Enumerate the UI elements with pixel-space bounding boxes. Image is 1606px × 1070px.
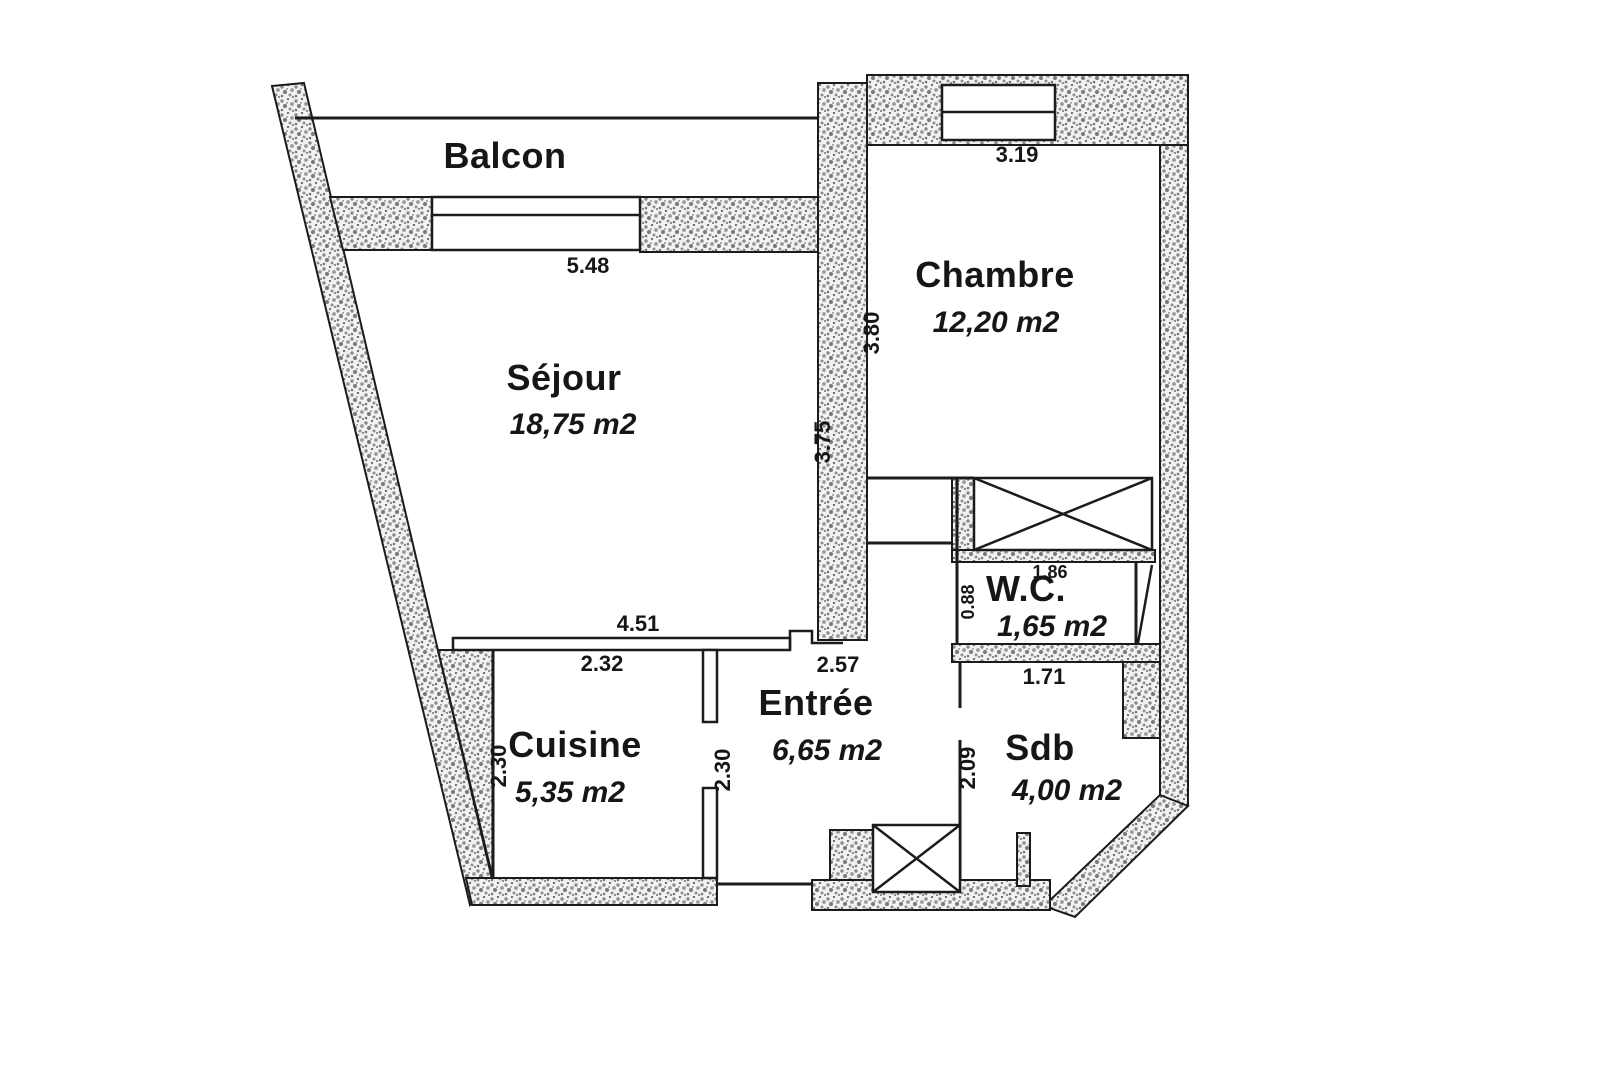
wall-cuisine-right-upper <box>703 650 717 722</box>
wall-sdb-notch <box>1123 655 1160 738</box>
wall-balcony-band-left <box>330 197 432 250</box>
dim-chambre-left: 3.80 <box>859 312 884 355</box>
dim-cuisine-left: 2.30 <box>486 745 511 788</box>
wall-chamfer-bottom-right <box>1044 795 1188 917</box>
room-label-entree: Entrée <box>758 682 873 723</box>
room-label-cuisine: Cuisine <box>508 724 642 765</box>
room-area-chambre: 12,20 m2 <box>933 306 1060 339</box>
dim-wc-left: 0.88 <box>958 584 978 619</box>
room-area-sejour: 18,75 m2 <box>510 408 637 441</box>
wall-right <box>1160 145 1188 806</box>
room-area-sdb: 4,00 m2 <box>1011 774 1122 807</box>
wall-sdb-door-stub <box>1017 833 1030 886</box>
dim-sejour-right: 3.75 <box>810 421 835 464</box>
wall-balcony-band-right <box>640 197 818 252</box>
dim-cuisine-top: 2.32 <box>581 651 624 676</box>
wall-center-vertical <box>818 83 867 640</box>
dim-sdb-left: 2.09 <box>955 747 980 790</box>
window-chambre <box>942 85 1055 140</box>
room-label-chambre: Chambre <box>915 254 1075 295</box>
room-area-cuisine: 5,35 m2 <box>515 776 625 809</box>
wall-sejour-cuisine <box>453 638 790 650</box>
dim-wc-top: 1.86 <box>1032 562 1067 582</box>
room-label-sdb: Sdb <box>1005 727 1075 768</box>
dim-balcon-width: 5.48 <box>567 253 610 278</box>
wall-closet-left-block <box>952 478 974 550</box>
wall-closet-bottom-strip <box>952 550 1155 562</box>
window-balcon <box>432 197 640 250</box>
dim-chambre-top: 3.19 <box>996 142 1039 167</box>
dim-cuisine-right: 2.30 <box>710 749 735 792</box>
floor-plan-page: Balcon Séjour 18,75 m2 Chambre 12,20 m2 … <box>0 0 1606 1070</box>
floor-plan: Balcon Séjour 18,75 m2 Chambre 12,20 m2 … <box>0 0 1606 1070</box>
closet-cross-box <box>974 478 1152 550</box>
dim-sdb-top: 1.71 <box>1023 664 1066 689</box>
dim-entree-top: 2.57 <box>817 652 860 677</box>
room-area-wc: 1,65 m2 <box>997 610 1107 643</box>
wall-wc-sdb-separator <box>952 644 1160 662</box>
wall-cuisine-right-lower <box>703 788 717 878</box>
dim-sejour-bottom: 4.51 <box>617 611 660 636</box>
shaft-cross-box <box>873 825 960 892</box>
wall-cuisine-bottom <box>466 878 717 905</box>
room-label-sejour: Séjour <box>506 357 621 398</box>
room-label-balcon: Balcon <box>443 135 566 176</box>
room-area-entree: 6,65 m2 <box>772 734 882 767</box>
wc-door-leaf <box>1138 565 1152 643</box>
